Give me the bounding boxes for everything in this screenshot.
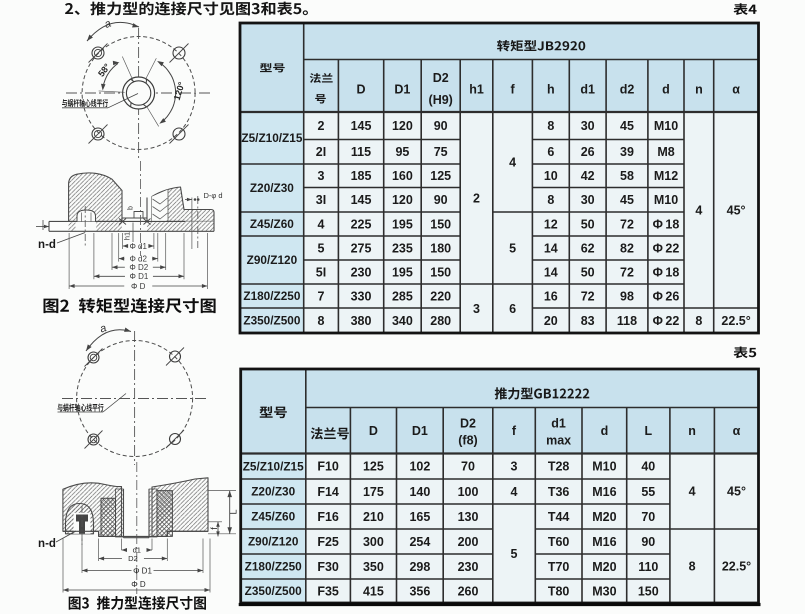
svg-text:Z20/Z30: Z20/Z30 [250, 181, 294, 195]
svg-text:75: 75 [434, 145, 448, 159]
svg-text:Z90/Z120: Z90/Z120 [248, 535, 299, 549]
svg-text:165: 165 [409, 510, 430, 524]
svg-text:150: 150 [430, 217, 451, 231]
svg-text:M30: M30 [592, 584, 616, 598]
svg-text:185: 185 [351, 169, 372, 183]
svg-text:14: 14 [544, 265, 558, 279]
svg-text:350: 350 [363, 560, 384, 574]
svg-text:M16: M16 [592, 485, 616, 499]
svg-text:8: 8 [318, 314, 325, 328]
svg-text:72: 72 [620, 265, 634, 279]
svg-text:98: 98 [620, 289, 634, 303]
svg-text:D2: D2 [460, 416, 476, 430]
svg-text:118: 118 [617, 314, 637, 328]
svg-text:Z90/Z120: Z90/Z120 [247, 253, 298, 267]
svg-text:M8: M8 [657, 145, 674, 159]
svg-text:M20: M20 [592, 560, 616, 574]
svg-text:3: 3 [473, 302, 480, 316]
svg-text:230: 230 [458, 560, 479, 574]
svg-text:235: 235 [392, 241, 413, 255]
svg-text:Φ D: Φ D [131, 580, 146, 589]
svg-text:120: 120 [392, 193, 413, 207]
svg-text:3: 3 [511, 460, 518, 474]
svg-text:260: 260 [458, 584, 479, 598]
svg-text:4: 4 [509, 155, 516, 169]
svg-text:4: 4 [511, 485, 518, 499]
svg-text:Z350/Z500: Z350/Z500 [243, 314, 300, 328]
svg-text:150: 150 [430, 265, 451, 279]
svg-text:125: 125 [430, 169, 451, 183]
svg-text:M10: M10 [654, 119, 678, 133]
svg-text:F30: F30 [317, 560, 339, 574]
svg-text:M12: M12 [654, 169, 678, 183]
svg-text:F25: F25 [317, 535, 339, 549]
svg-text:45°: 45° [727, 203, 746, 217]
svg-text:Φ 22: Φ 22 [653, 314, 680, 328]
svg-text:175: 175 [363, 485, 384, 499]
svg-text:12: 12 [544, 217, 558, 231]
svg-text:M10: M10 [592, 460, 616, 474]
svg-text:275: 275 [351, 241, 372, 255]
svg-text:F35: F35 [317, 584, 339, 598]
svg-text:L: L [644, 424, 652, 438]
svg-text:70: 70 [641, 510, 655, 524]
svg-text:5: 5 [511, 547, 518, 561]
svg-text:356: 356 [409, 584, 430, 598]
svg-text:M16: M16 [592, 535, 616, 549]
svg-text:8: 8 [547, 119, 554, 133]
svg-text:Z180/Z250: Z180/Z250 [245, 560, 302, 574]
svg-text:M20: M20 [592, 510, 616, 524]
svg-text:72: 72 [620, 217, 634, 231]
svg-text:Φ D: Φ D [131, 282, 146, 291]
svg-text:Z45/Z60: Z45/Z60 [251, 510, 295, 524]
svg-text:145: 145 [351, 193, 372, 207]
svg-text:55: 55 [641, 485, 655, 499]
svg-text:8: 8 [547, 193, 554, 207]
svg-text:h1: h1 [123, 232, 132, 240]
svg-text:D-φ d: D-φ d [203, 191, 222, 200]
svg-text:D1: D1 [412, 424, 428, 438]
svg-text:22.5°: 22.5° [721, 314, 750, 328]
svg-text:150: 150 [638, 584, 659, 598]
svg-text:45: 45 [620, 193, 634, 207]
svg-text:Z5/Z10/Z15: Z5/Z10/Z15 [243, 459, 304, 473]
svg-text:195: 195 [392, 265, 413, 279]
svg-text:90: 90 [434, 193, 448, 207]
svg-text:D: D [369, 424, 378, 438]
svg-text:95: 95 [395, 145, 409, 159]
svg-text:90: 90 [434, 119, 448, 133]
svg-text:Φ D2: Φ D2 [129, 263, 148, 272]
svg-text:Z180/Z250: Z180/Z250 [243, 289, 300, 303]
svg-text:d2: d2 [620, 82, 635, 96]
svg-text:230: 230 [351, 265, 372, 279]
svg-text:70: 70 [461, 460, 475, 474]
svg-text:n-d: n-d [38, 239, 56, 251]
svg-text:h1: h1 [469, 82, 484, 96]
svg-text:Z5/Z10/Z15: Z5/Z10/Z15 [241, 131, 302, 145]
svg-text:4: 4 [689, 485, 696, 499]
svg-text:195: 195 [392, 217, 413, 231]
svg-text:145: 145 [351, 119, 372, 133]
svg-text:D: D [356, 82, 365, 96]
svg-text:83: 83 [581, 314, 595, 328]
svg-text:n: n [695, 82, 703, 96]
svg-text:D2: D2 [433, 71, 449, 85]
svg-text:340: 340 [392, 314, 413, 328]
svg-text:125: 125 [363, 460, 384, 474]
svg-text:280: 280 [430, 314, 451, 328]
svg-text:T36: T36 [548, 485, 570, 499]
svg-text:30: 30 [581, 193, 595, 207]
svg-text:39: 39 [620, 145, 634, 159]
svg-text:220: 220 [430, 289, 451, 303]
svg-text:d: d [662, 82, 670, 96]
svg-text:120: 120 [392, 119, 413, 133]
svg-text:130: 130 [458, 510, 479, 524]
svg-text:62: 62 [581, 241, 595, 255]
svg-text:45: 45 [620, 119, 634, 133]
svg-text:20: 20 [544, 314, 558, 328]
svg-text:22.5°: 22.5° [722, 559, 751, 573]
svg-text:26: 26 [581, 145, 595, 159]
svg-text:7: 7 [318, 289, 325, 303]
svg-text:200: 200 [458, 535, 479, 549]
svg-text:Φ D1: Φ D1 [133, 566, 152, 575]
svg-text:T80: T80 [548, 584, 570, 598]
svg-text:102: 102 [409, 460, 430, 474]
svg-text:2: 2 [473, 191, 480, 205]
svg-text:max: max [546, 433, 571, 447]
svg-text:F10: F10 [317, 460, 339, 474]
svg-text:6: 6 [547, 145, 554, 159]
svg-text:M10: M10 [654, 193, 678, 207]
svg-text:T44: T44 [548, 510, 570, 524]
svg-text:(H9): (H9) [429, 93, 453, 107]
svg-text:Φ D1: Φ D1 [129, 272, 148, 281]
svg-text:T28: T28 [548, 460, 570, 474]
svg-text:300: 300 [363, 535, 384, 549]
svg-text:Φ d1: Φ d1 [129, 242, 147, 251]
svg-text:T60: T60 [548, 535, 570, 549]
svg-text:2: 2 [318, 119, 325, 133]
svg-text:F14: F14 [317, 485, 339, 499]
svg-text:45°: 45° [727, 485, 746, 499]
svg-text:3: 3 [318, 169, 325, 183]
svg-text:82: 82 [620, 241, 634, 255]
svg-text:n: n [688, 424, 696, 438]
svg-text:b: b [127, 206, 134, 210]
svg-text:16: 16 [544, 289, 558, 303]
svg-text:40: 40 [641, 460, 655, 474]
svg-text:n-d: n-d [38, 538, 56, 550]
svg-text:α: α [732, 82, 740, 96]
svg-text:L: L [229, 509, 239, 514]
svg-text:d1: d1 [551, 416, 566, 430]
svg-text:298: 298 [409, 560, 430, 574]
svg-text:8: 8 [689, 559, 696, 573]
svg-text:D1: D1 [394, 82, 410, 96]
svg-text:(f8): (f8) [458, 433, 477, 447]
svg-text:5I: 5I [316, 265, 326, 279]
svg-text:285: 285 [392, 289, 413, 303]
svg-text:5: 5 [509, 241, 516, 255]
svg-text:380: 380 [351, 314, 372, 328]
svg-text:4: 4 [318, 217, 325, 231]
svg-text:Z20/Z30: Z20/Z30 [251, 485, 295, 499]
svg-text:4: 4 [695, 203, 702, 217]
svg-text:330: 330 [351, 289, 372, 303]
svg-text:8: 8 [695, 314, 702, 328]
svg-text:5: 5 [318, 241, 325, 255]
svg-text:254: 254 [409, 535, 430, 549]
svg-text:110: 110 [638, 560, 658, 574]
svg-text:180: 180 [430, 241, 451, 255]
svg-text:14: 14 [544, 241, 558, 255]
svg-text:T70: T70 [548, 560, 570, 574]
svg-text:Φ 26: Φ 26 [653, 289, 680, 303]
svg-text:115: 115 [351, 145, 371, 159]
svg-text:d1: d1 [580, 82, 595, 96]
svg-text:415: 415 [363, 584, 384, 598]
svg-text:2I: 2I [316, 145, 326, 159]
svg-text:42: 42 [581, 169, 595, 183]
svg-text:Φ 18: Φ 18 [653, 217, 680, 231]
svg-text:6: 6 [509, 302, 516, 316]
svg-text:α: α [733, 424, 741, 438]
svg-text:30: 30 [581, 119, 595, 133]
svg-text:h: h [547, 82, 555, 96]
svg-text:Z45/Z60: Z45/Z60 [250, 217, 294, 231]
svg-text:50: 50 [581, 217, 595, 231]
svg-text:D2: D2 [128, 554, 138, 563]
svg-text:3I: 3I [316, 193, 326, 207]
svg-text:140: 140 [409, 485, 430, 499]
svg-text:210: 210 [363, 510, 384, 524]
svg-text:90: 90 [641, 535, 655, 549]
svg-text:58: 58 [620, 169, 634, 183]
svg-text:225: 225 [351, 217, 372, 231]
svg-text:Φ 22: Φ 22 [653, 241, 680, 255]
svg-text:d: d [601, 424, 609, 438]
svg-text:100: 100 [458, 485, 479, 499]
svg-text:F16: F16 [317, 510, 339, 524]
svg-text:10: 10 [544, 169, 558, 183]
svg-text:Z350/Z500: Z350/Z500 [245, 584, 302, 598]
svg-text:160: 160 [392, 169, 413, 183]
svg-text:50: 50 [581, 265, 595, 279]
svg-text:Φ 18: Φ 18 [653, 265, 680, 279]
svg-text:72: 72 [581, 289, 595, 303]
